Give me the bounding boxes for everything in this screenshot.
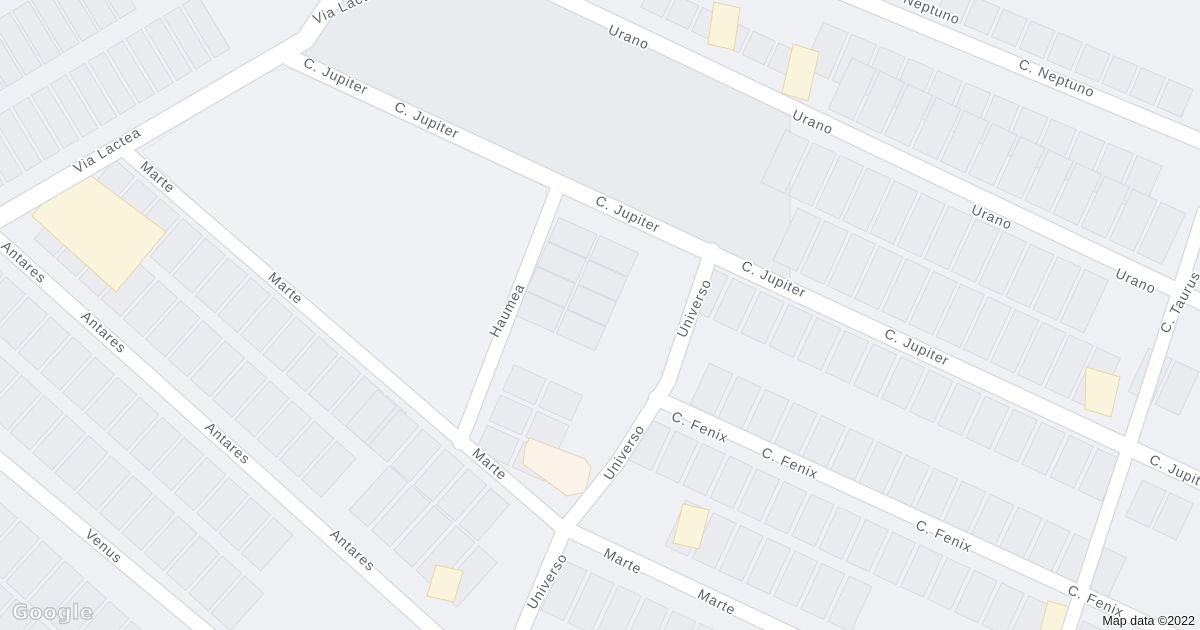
landmark-building	[708, 2, 740, 50]
map-attribution: Map data ©2022	[1102, 614, 1195, 628]
map-viewport[interactable]: Via LacteaVia LacteaC. JupiterC. Jupiter…	[0, 0, 1200, 630]
google-logo[interactable]: Google	[12, 600, 94, 624]
map-canvas[interactable]: Via LacteaVia LacteaC. JupiterC. Jupiter…	[0, 0, 1200, 630]
